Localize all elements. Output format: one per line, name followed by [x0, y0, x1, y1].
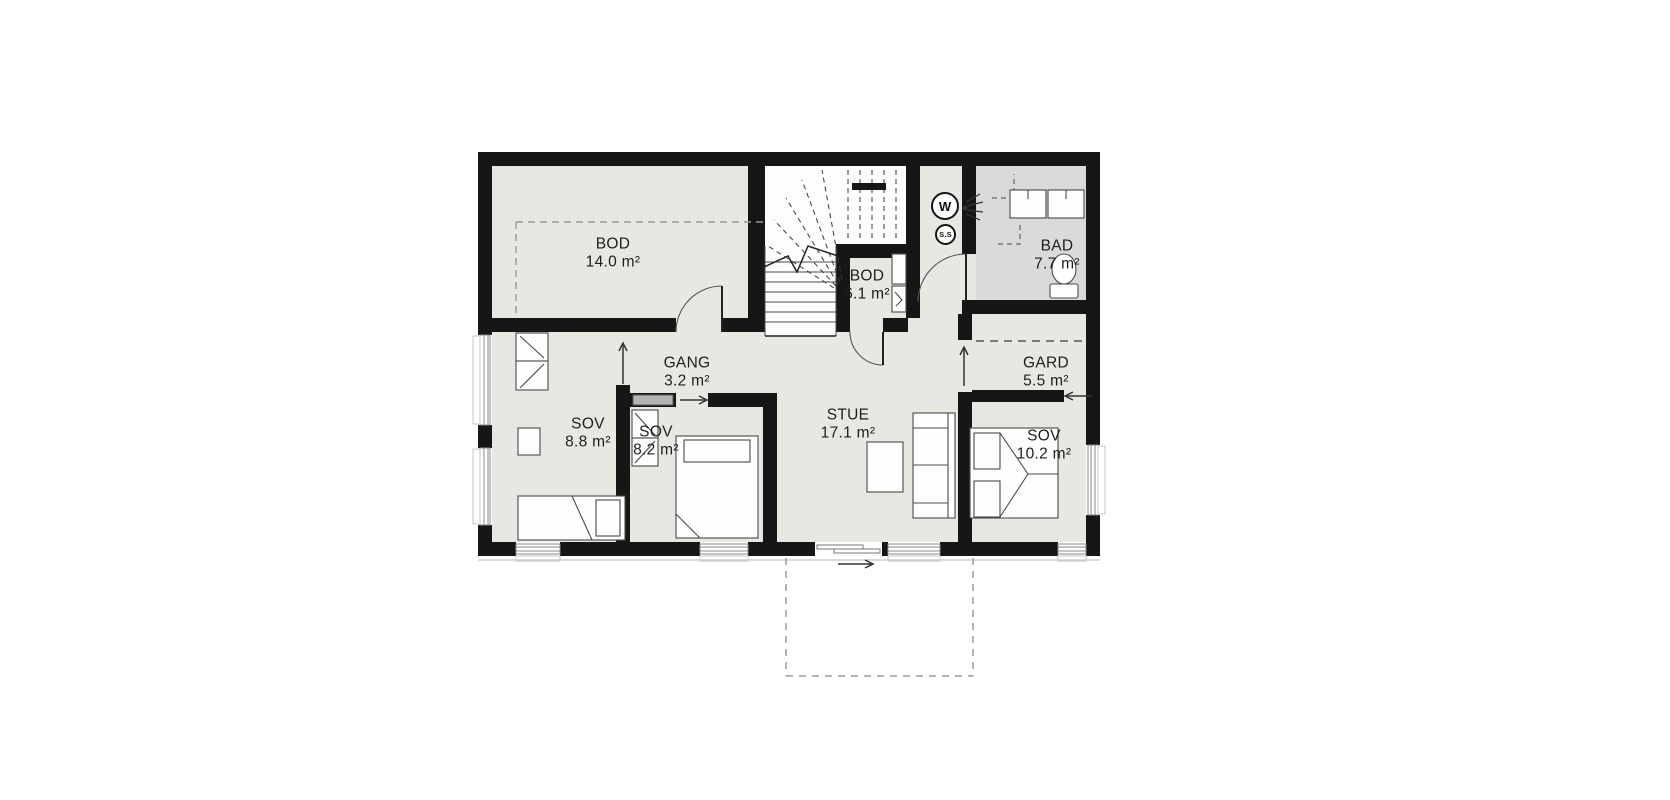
room-area: 17.1 m²	[821, 425, 876, 443]
washer-symbol: W	[931, 192, 959, 220]
room-name: GARD	[1023, 355, 1069, 373]
room-name: BOD	[844, 268, 890, 286]
room-name: STUE	[821, 407, 876, 425]
bed-sov82	[676, 436, 758, 538]
room-name: SOV	[1017, 428, 1072, 446]
bed-sov88	[518, 496, 625, 540]
arrow-patio-door	[838, 560, 873, 568]
room-label-sov88: SOV 8.8 m²	[565, 416, 611, 453]
hot-water-tank-symbol: S.S	[935, 224, 956, 245]
room-name: GANG	[664, 355, 711, 373]
sov82-sliding-door-pocket	[633, 395, 673, 405]
room-label-sov82: SOV 8.2 m²	[633, 424, 679, 461]
hot-water-tank-label: S.S	[939, 230, 952, 239]
floor-plan-drawing	[0, 0, 1670, 800]
room-label-gard: GARD 5.5 m²	[1023, 355, 1069, 392]
room-label-gang: GANG 3.2 m²	[664, 355, 711, 392]
room-label-bod61: BOD 6.1 m²	[844, 268, 890, 305]
room-label-bod14: BOD 14.0 m²	[586, 236, 641, 273]
patio-sliding-door	[815, 544, 882, 554]
coffee-table-stue	[867, 442, 903, 492]
room-area: 3.2 m²	[664, 373, 711, 391]
room-name: SOV	[565, 416, 611, 434]
sofa-stue	[913, 413, 955, 518]
room-label-stue: STUE 17.1 m²	[821, 407, 876, 444]
room-name: BAD	[1034, 238, 1080, 256]
bod61-cabinets	[892, 254, 906, 312]
room-area: 8.8 m²	[565, 434, 611, 452]
room-area: 6.1 m²	[844, 286, 890, 304]
room-area: 14.0 m²	[586, 254, 641, 272]
room-name: BOD	[586, 236, 641, 254]
room-label-bad: BAD 7.7 m²	[1034, 238, 1080, 275]
shelf-sov88	[518, 428, 540, 455]
room-area: 8.2 m²	[633, 442, 679, 460]
stair-top-landing-edge	[852, 183, 886, 190]
room-area: 7.7 m²	[1034, 256, 1080, 274]
room-area: 5.5 m²	[1023, 373, 1069, 391]
room-area: 10.2 m²	[1017, 446, 1072, 464]
terrace-outline	[786, 558, 973, 676]
floor-plan-page: BOD 14.0 m² BOD 6.1 m² BAD 7.7 m² GANG 3…	[0, 0, 1670, 800]
wardrobe-sov88	[516, 333, 548, 390]
room-label-sov102: SOV 10.2 m²	[1017, 428, 1072, 465]
washer-symbol-label: W	[939, 199, 951, 214]
room-name: SOV	[633, 424, 679, 442]
